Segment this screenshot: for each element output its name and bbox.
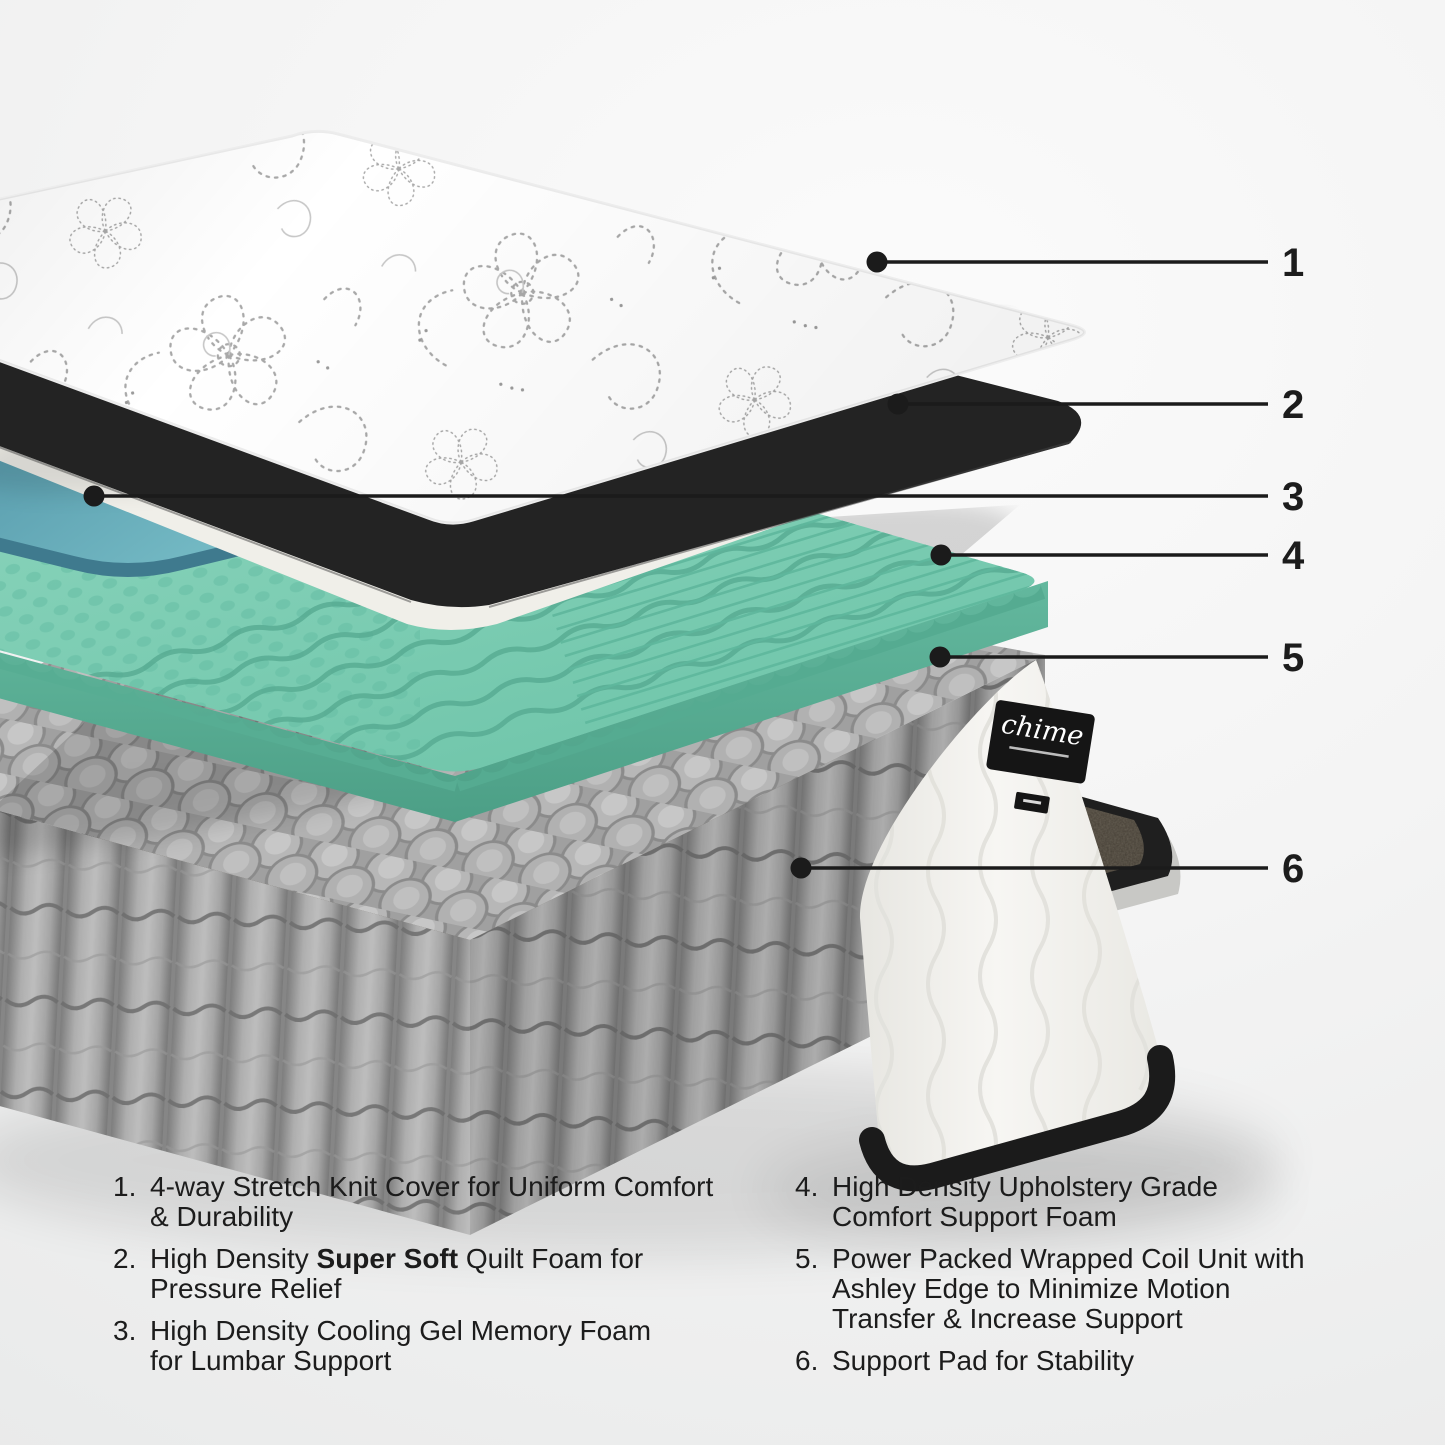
legend-item-3-line2: for Lumbar Support	[150, 1345, 391, 1376]
callout-number-1: 1	[1282, 241, 1304, 285]
legend-item-6-number: 6.	[795, 1346, 832, 1376]
callout-dot-3	[84, 486, 105, 507]
legend-item-4-number: 4.	[795, 1172, 832, 1232]
legend-item-2: 2. High Density Super Soft Quilt Foam fo…	[113, 1244, 773, 1304]
legend-item-2-line2: Pressure Relief	[150, 1273, 341, 1304]
legend-item-4: 4. High Density Upholstery Grade Comfort…	[795, 1172, 1355, 1232]
legend-item-6: 6. Support Pad for Stability	[795, 1346, 1355, 1376]
legend-column-left: 1. 4-way Stretch Knit Cover for Uniform …	[113, 1172, 773, 1376]
legend-item-1-text: 4-way Stretch Knit Cover for Uniform Com…	[150, 1172, 713, 1232]
mattress-exploded-diagram: chime	[0, 0, 1445, 1445]
legend-item-1-line2: & Durability	[150, 1201, 293, 1232]
callout-numbers: 1 2 3 4 5 6	[1282, 241, 1305, 891]
legend-item-4-line1: High Density Upholstery Grade	[832, 1171, 1218, 1202]
legend-item-2-line1-pre: High Density	[150, 1243, 317, 1274]
callout-number-6: 6	[1282, 847, 1304, 891]
legend-item-5-text: Power Packed Wrapped Coil Unit with Ashl…	[832, 1244, 1305, 1334]
callout-number-5: 5	[1282, 636, 1304, 680]
callout-dot-2	[888, 394, 909, 415]
legend-item-3-text: High Density Cooling Gel Memory Foam for…	[150, 1316, 651, 1376]
callout-dot-1	[867, 252, 888, 273]
legend-item-1-line1: 4-way Stretch Knit Cover for Uniform Com…	[150, 1171, 713, 1202]
legend-item-4-line2: Comfort Support Foam	[832, 1201, 1117, 1232]
legend-item-5-line1: Power Packed Wrapped Coil Unit with	[832, 1243, 1305, 1274]
legend-item-2-line1-bold: Super Soft	[317, 1243, 459, 1274]
legend-item-3: 3. High Density Cooling Gel Memory Foam …	[113, 1316, 773, 1376]
callout-dot-5	[930, 647, 951, 668]
legend-item-5-line3: Transfer & Increase Support	[832, 1303, 1183, 1334]
legend-item-1: 1. 4-way Stretch Knit Cover for Uniform …	[113, 1172, 773, 1232]
legend-item-6-line1: Support Pad for Stability	[832, 1345, 1134, 1376]
legend-item-3-number: 3.	[113, 1316, 150, 1376]
legend-item-2-text: High Density Super Soft Quilt Foam for P…	[150, 1244, 643, 1304]
legend-item-2-number: 2.	[113, 1244, 150, 1304]
legend-item-1-number: 1.	[113, 1172, 150, 1232]
legend-item-3-line1: High Density Cooling Gel Memory Foam	[150, 1315, 651, 1346]
legend-item-2-line1-post: Quilt Foam for	[458, 1243, 643, 1274]
legend-item-4-text: High Density Upholstery Grade Comfort Su…	[832, 1172, 1218, 1232]
legend-item-5-line2: Ashley Edge to Minimize Motion	[832, 1273, 1230, 1304]
callout-number-2: 2	[1282, 383, 1304, 427]
legend-item-5: 5. Power Packed Wrapped Coil Unit with A…	[795, 1244, 1355, 1334]
callout-dot-4	[931, 545, 952, 566]
legend-column-right: 4. High Density Upholstery Grade Comfort…	[795, 1172, 1355, 1376]
legend-item-6-text: Support Pad for Stability	[832, 1346, 1134, 1376]
callout-dot-6	[791, 858, 812, 879]
callout-number-4: 4	[1282, 534, 1305, 578]
callout-number-3: 3	[1282, 475, 1304, 519]
legend-item-5-number: 5.	[795, 1244, 832, 1334]
